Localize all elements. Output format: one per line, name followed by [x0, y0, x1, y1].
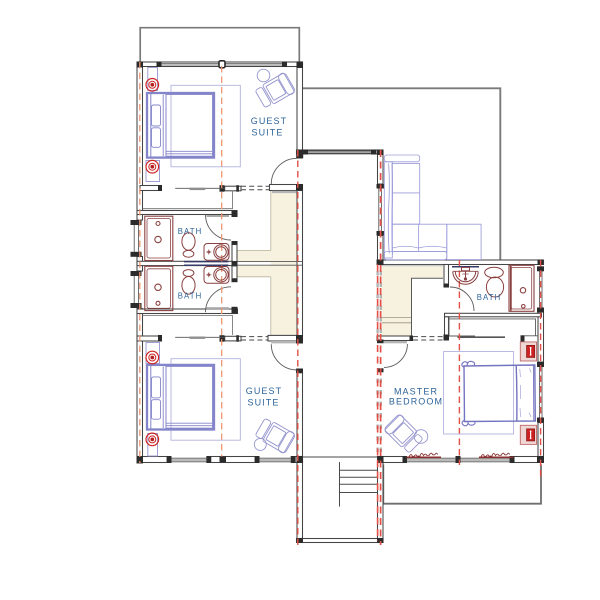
svg-text:GUEST: GUEST — [246, 386, 283, 396]
svg-text:BEDROOM: BEDROOM — [389, 397, 443, 407]
svg-text:SUITE: SUITE — [247, 398, 279, 408]
svg-text:SUITE: SUITE — [251, 128, 283, 138]
svg-text:GUEST: GUEST — [251, 116, 288, 126]
svg-text:BATH: BATH — [477, 293, 502, 302]
svg-text:BATH: BATH — [178, 227, 203, 236]
svg-text:BATH: BATH — [178, 292, 203, 301]
svg-text:MASTER: MASTER — [394, 387, 438, 397]
